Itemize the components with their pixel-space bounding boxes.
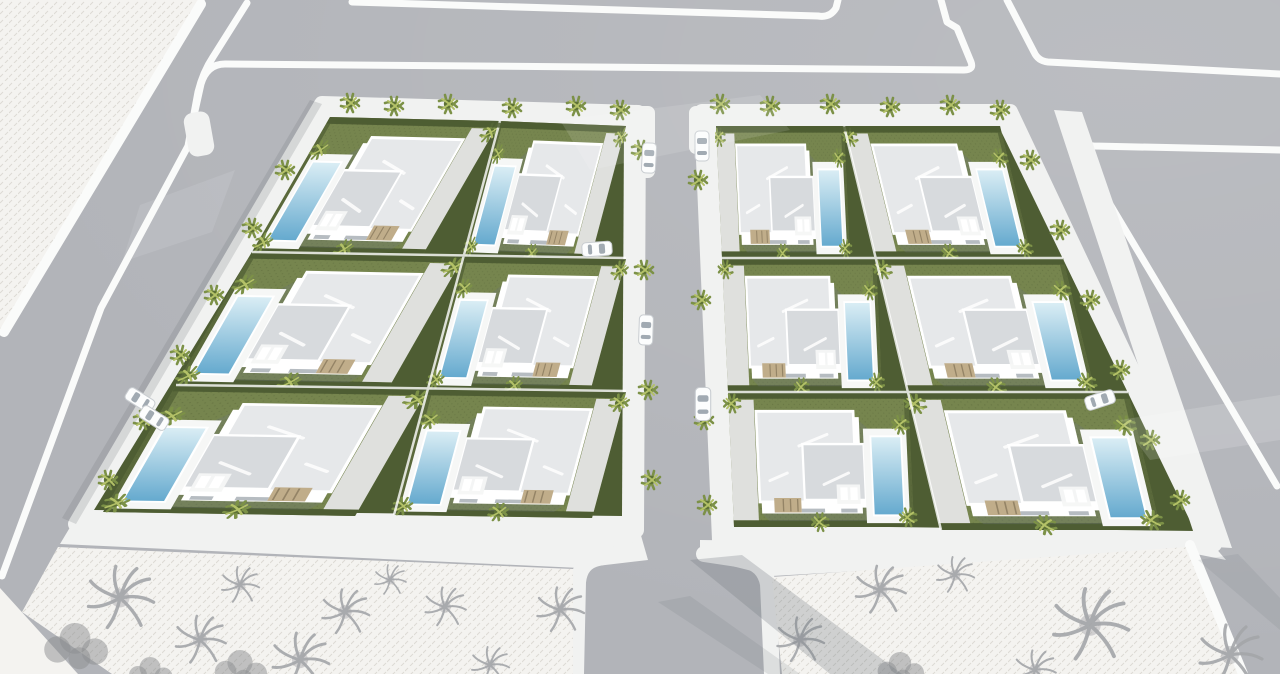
- villa-plot-11: [724, 392, 917, 531]
- van: [695, 388, 710, 421]
- villa-plot-6: [390, 389, 631, 522]
- aerial-render-viewport: Aerial 3D render of a residential villa …: [0, 0, 1280, 674]
- villa-plot-9: [718, 258, 884, 396]
- car: [582, 241, 613, 257]
- car: [638, 315, 653, 345]
- aerial-render: Aerial 3D render of a residential villa …: [0, 0, 1280, 674]
- villa-plot-7: [713, 126, 852, 262]
- villa-plot-10: [871, 258, 1098, 396]
- villa-plot-12: [903, 392, 1166, 534]
